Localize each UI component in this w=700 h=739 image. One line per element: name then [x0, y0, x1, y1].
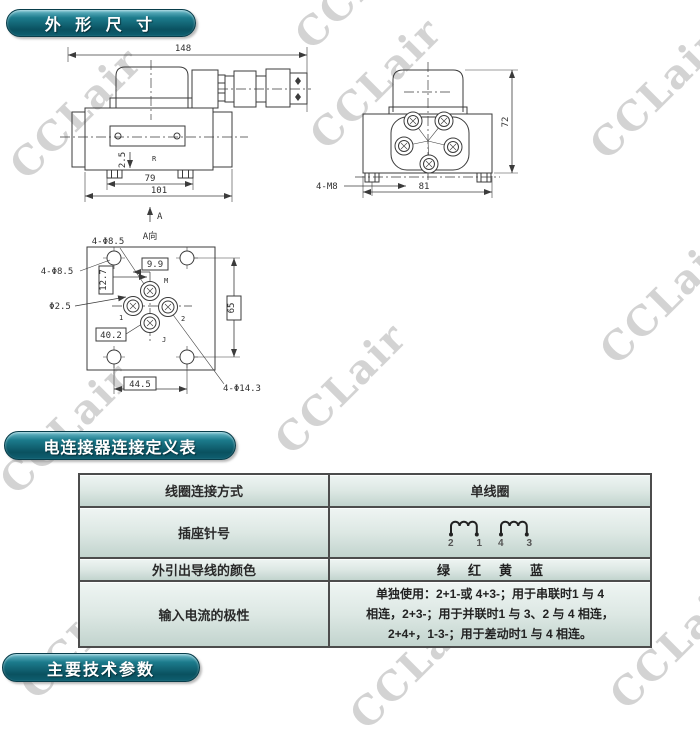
coil-symbols: 2 1 4 3 [448, 516, 532, 549]
dim-72: 72 [501, 117, 511, 128]
hole-label-left: 4-Φ8.5 [41, 267, 74, 277]
view-direction-label: A [157, 212, 163, 222]
pin-hole-label: Φ2.5 [49, 302, 71, 312]
connector-screw-icon [295, 77, 301, 85]
coil-icon [448, 516, 482, 537]
polarity-line: 2+4+，1-3-；用于差动时1 与 4 相连。 [366, 624, 614, 644]
bottom-view-title: A向 [143, 230, 157, 242]
port-label-right: 2 [181, 315, 185, 323]
side-view-drawing: 148 2.5 R [60, 44, 311, 222]
port-label-left: 1 [119, 314, 123, 322]
dimension-drawings: .ln{stroke:#3b3b3b;stroke-width:1;fill:n… [0, 0, 700, 430]
section-banner-connector-table: 电连接器连接定义表 [4, 431, 236, 460]
coil-symbol-left: 2 1 [448, 516, 482, 549]
dim-2-5: 2.5 [118, 152, 128, 168]
connector-screw-icon [295, 93, 301, 101]
dim-81: 81 [419, 182, 430, 192]
wire-color: 绿 [437, 560, 450, 579]
dim-65: 65 [227, 303, 237, 314]
polarity-line: 单独使用：2+1-或 4+3-；用于串联时1 与 4 [366, 584, 614, 604]
wire-color-list: 绿 红 黄 蓝 [437, 560, 543, 579]
table-row: 插座针号 2 1 [80, 508, 650, 559]
row-label: 插座针号 [80, 508, 330, 557]
polarity-line: 相连，2+3-；用于并联时1 与 3、2 与 4 相连， [366, 604, 614, 624]
wire-color: 黄 [499, 560, 512, 579]
bottom-view-drawing: A向 M 1 2 J 9.9 [41, 230, 261, 394]
table-row: 线圈连接方式 单线圈 [80, 475, 650, 508]
body-mark: R [152, 155, 157, 163]
port-holes [395, 112, 462, 173]
pin-number: 1 [476, 538, 482, 549]
banner-text: 外 形 尺 寸 [45, 11, 157, 35]
dim-12-7: 12.7 [99, 269, 109, 291]
dim-79: 79 [145, 174, 156, 184]
banner-text: 电连接器连接定义表 [43, 434, 196, 458]
pin-number: 4 [498, 538, 504, 549]
row-value: 绿 红 黄 蓝 [330, 559, 650, 580]
row-label: 输入电流的极性 [80, 582, 330, 646]
table-row: 输入电流的极性 单独使用：2+1-或 4+3-；用于串联时1 与 4 相连，2+… [80, 582, 650, 646]
polarity-description: 单独使用：2+1-或 4+3-；用于串联时1 与 4 相连，2+3-；用于并联时… [366, 584, 614, 644]
catalog-page: { "banners": { "outline_dims": "外 形 尺 寸"… [0, 0, 700, 689]
row-value: 2 1 4 3 [330, 508, 650, 557]
wire-color: 蓝 [530, 560, 543, 579]
hole-label-bottom-right: 4-Φ14.3 [223, 384, 261, 394]
section-banner-outline-dims: 外 形 尺 寸 [6, 9, 196, 37]
connector-definition-table: 线圈连接方式 单线圈 插座针号 2 1 [78, 473, 652, 648]
row-value: 单独使用：2+1-或 4+3-；用于串联时1 与 4 相连，2+3-；用于并联时… [330, 582, 650, 646]
port-label-top: M [164, 277, 168, 285]
valve-ports [124, 282, 178, 333]
hole-label-top: 4-Φ8.5 [92, 237, 125, 247]
row-label: 线圈连接方式 [80, 475, 330, 506]
dim-101: 101 [151, 186, 167, 196]
dim-9-9: 9.9 [147, 260, 163, 270]
thread-label: 4-M8 [316, 182, 338, 192]
dim-44-5: 44.5 [129, 380, 151, 390]
end-view-drawing: 81 72 4-M8 [316, 62, 518, 198]
port-label-bottom: J [162, 336, 166, 344]
banner-text: 主要技术参数 [47, 656, 155, 680]
wire-color: 红 [468, 560, 481, 579]
section-banner-main-params: 主要技术参数 [2, 653, 200, 682]
coil-symbol-right: 4 3 [498, 516, 532, 549]
pin-number: 3 [526, 538, 532, 549]
table-row: 外引出导线的颜色 绿 红 黄 蓝 [80, 559, 650, 582]
dim-148: 148 [175, 44, 191, 54]
row-value: 单线圈 [330, 475, 650, 506]
dim-40-2: 40.2 [100, 331, 122, 341]
coil-icon [498, 516, 532, 537]
pin-number: 2 [448, 538, 454, 549]
row-label: 外引出导线的颜色 [80, 559, 330, 580]
